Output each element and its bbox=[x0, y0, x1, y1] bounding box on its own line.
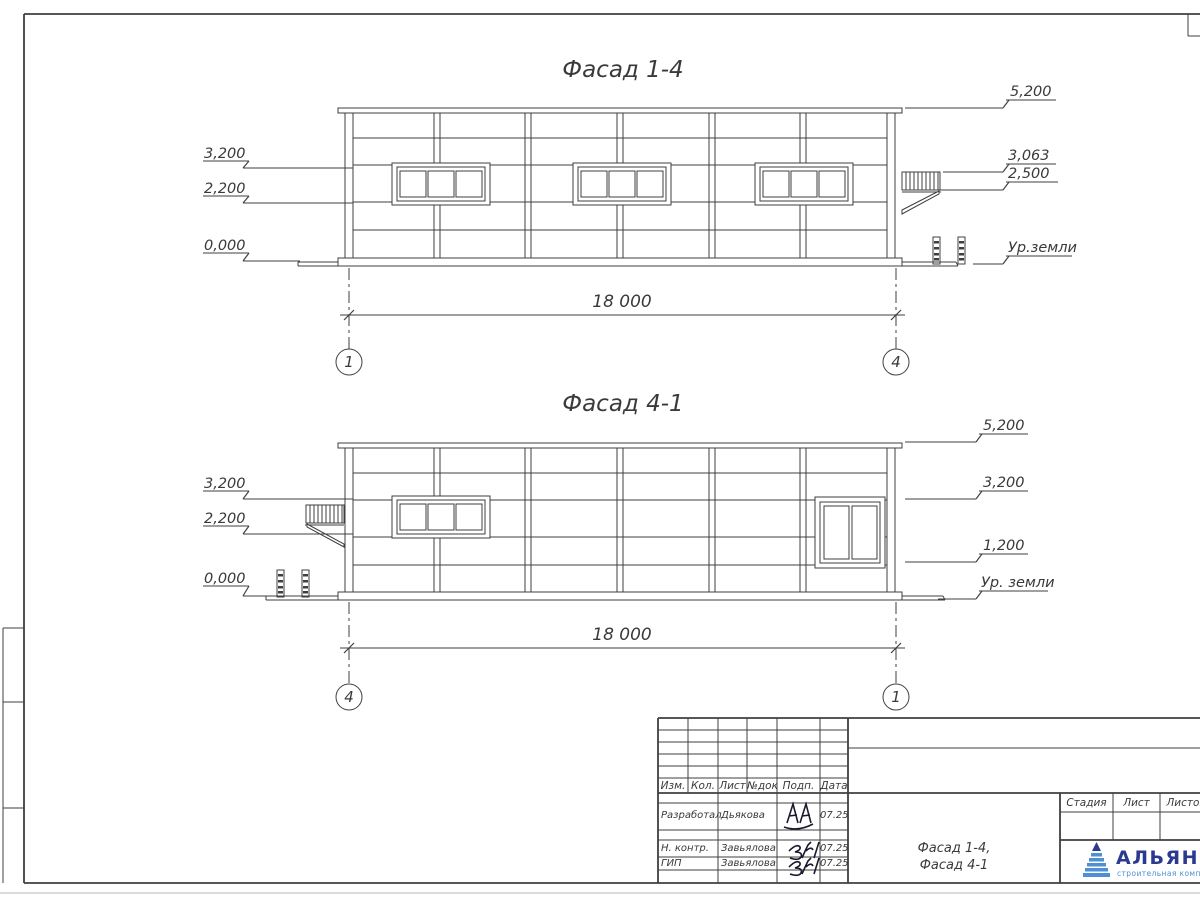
elevation-mark: 3,063 bbox=[1008, 148, 1050, 164]
document-title-line1: Фасад 1-4, bbox=[854, 840, 1054, 857]
dimension-line bbox=[336, 268, 909, 375]
sign-name: Дьякова bbox=[721, 810, 765, 821]
elevation-mark: 2,500 bbox=[1008, 166, 1050, 182]
elevation-mark: 5,200 bbox=[1010, 84, 1052, 100]
elevation-mark: 3,200 bbox=[983, 475, 1025, 491]
elevation-mark: 0,000 bbox=[204, 238, 246, 254]
ground-level-label: Ур. земли bbox=[981, 575, 1055, 591]
document-title: Фасад 1-4, Фасад 4-1 bbox=[854, 840, 1054, 874]
axis-bubble: 4 bbox=[883, 353, 909, 371]
header-col: Изм. bbox=[658, 780, 688, 792]
axis-bubble: 1 bbox=[336, 353, 362, 371]
facade-1-4-drawing bbox=[203, 100, 1072, 375]
facade-title: Фасад 4-1 bbox=[503, 391, 743, 417]
stage-col: Лист bbox=[1113, 797, 1160, 809]
large-window bbox=[815, 497, 885, 568]
ribbon-window bbox=[573, 163, 671, 205]
awning bbox=[902, 172, 941, 214]
header-col: Подп. bbox=[777, 780, 820, 792]
ribbon-window bbox=[755, 163, 853, 205]
awning bbox=[305, 505, 344, 547]
facade-title: Фасад 1-4 bbox=[503, 57, 743, 83]
drawing-linework bbox=[0, 0, 1200, 900]
sign-name: Завьялова bbox=[721, 843, 776, 854]
sign-role: ГИП bbox=[661, 858, 682, 869]
facade-4-1-drawing bbox=[203, 434, 1048, 710]
elevation-mark: 2,200 bbox=[204, 181, 246, 197]
sign-name: Завьялова bbox=[721, 858, 776, 869]
document-title-line2: Фасад 4-1 bbox=[854, 857, 1054, 874]
elevation-mark: 5,200 bbox=[983, 418, 1025, 434]
ribbon-window bbox=[392, 163, 490, 205]
elevation-mark: 3,200 bbox=[204, 146, 246, 162]
dimension-line bbox=[336, 602, 909, 710]
axis-bubble: 4 bbox=[336, 688, 362, 706]
ribbon-window bbox=[392, 496, 490, 538]
drawing-sheet: { "sheet": { "facades": [ { "title": "Фа… bbox=[0, 0, 1200, 900]
elevation-mark: 3,200 bbox=[204, 476, 246, 492]
axis-bubble: 1 bbox=[883, 688, 909, 706]
header-col: №док bbox=[747, 780, 777, 792]
bollard bbox=[933, 237, 965, 264]
sign-role: Н. контр. bbox=[661, 843, 709, 854]
sheet-frame bbox=[0, 14, 1200, 893]
sign-date: 07.25 bbox=[820, 810, 848, 821]
ground-level-label: Ур.земли bbox=[1008, 240, 1077, 256]
stage-col: Листов bbox=[1160, 797, 1200, 809]
dimension-label: 18 000 bbox=[552, 625, 692, 645]
elevation-mark: 0,000 bbox=[204, 571, 246, 587]
bollard bbox=[277, 570, 309, 597]
stage-col: Стадия bbox=[1060, 797, 1113, 809]
header-col: Кол. bbox=[688, 780, 718, 792]
elevation-mark: 1,200 bbox=[983, 538, 1025, 554]
dimension-label: 18 000 bbox=[552, 292, 692, 312]
company-logo-subtitle: строительная компания bbox=[1117, 869, 1200, 878]
company-logo-name: АЛЬЯНС bbox=[1116, 847, 1200, 869]
sign-date: 07.25 bbox=[820, 843, 848, 854]
elevation-mark: 2,200 bbox=[204, 511, 246, 527]
header-col: Лист bbox=[718, 780, 747, 792]
sign-role: Разработал bbox=[661, 810, 722, 821]
sign-date: 07.25 bbox=[820, 858, 848, 869]
logo-pyramid-icon bbox=[1083, 842, 1110, 877]
header-col: Дата bbox=[820, 780, 848, 792]
